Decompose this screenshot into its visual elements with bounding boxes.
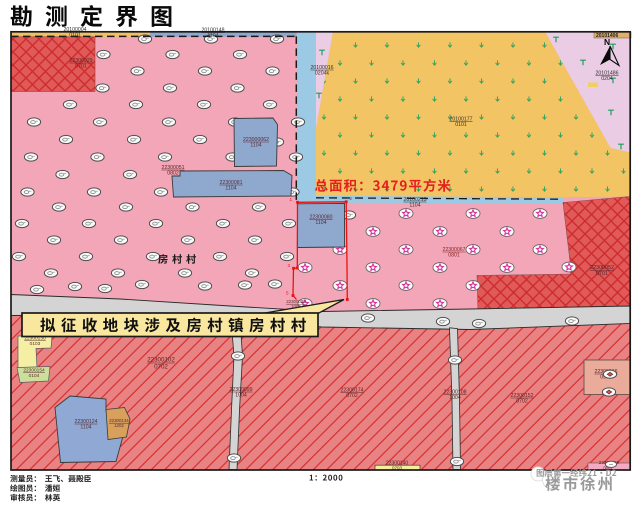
svg-text:N: N bbox=[604, 37, 610, 47]
svg-text:2: 2 bbox=[350, 196, 353, 201]
svg-text:0702: 0702 bbox=[154, 364, 168, 371]
svg-text:0103: 0103 bbox=[30, 341, 41, 347]
svg-text:22300102: 22300102 bbox=[147, 357, 175, 364]
svg-text:0204: 0204 bbox=[601, 76, 613, 82]
svg-text:1004: 1004 bbox=[449, 395, 461, 401]
svg-text:3: 3 bbox=[288, 263, 291, 268]
svg-text:1104: 1104 bbox=[207, 33, 218, 39]
svg-text:0101: 0101 bbox=[455, 122, 467, 128]
svg-text:0702: 0702 bbox=[346, 393, 358, 399]
svg-text:1004: 1004 bbox=[291, 304, 301, 309]
svg-text:1004: 1004 bbox=[235, 393, 247, 399]
svg-text:0204k: 0204k bbox=[315, 71, 330, 77]
svg-text:1104: 1104 bbox=[225, 186, 236, 192]
svg-text:0104: 0104 bbox=[29, 373, 40, 379]
svg-text:0702: 0702 bbox=[516, 399, 528, 405]
svg-text:0101: 0101 bbox=[69, 33, 81, 39]
svg-text:1104: 1104 bbox=[409, 203, 420, 209]
svg-text:5: 5 bbox=[286, 291, 289, 296]
svg-text:1202: 1202 bbox=[114, 423, 124, 428]
svg-text:1104: 1104 bbox=[315, 220, 326, 226]
svg-text:0801: 0801 bbox=[448, 253, 460, 259]
svg-text:0701: 0701 bbox=[596, 271, 608, 277]
svg-text:0701: 0701 bbox=[75, 64, 87, 70]
svg-text:1104: 1104 bbox=[80, 425, 91, 431]
svg-text:1104: 1104 bbox=[250, 143, 261, 149]
svg-text:1: 1 bbox=[290, 197, 293, 202]
